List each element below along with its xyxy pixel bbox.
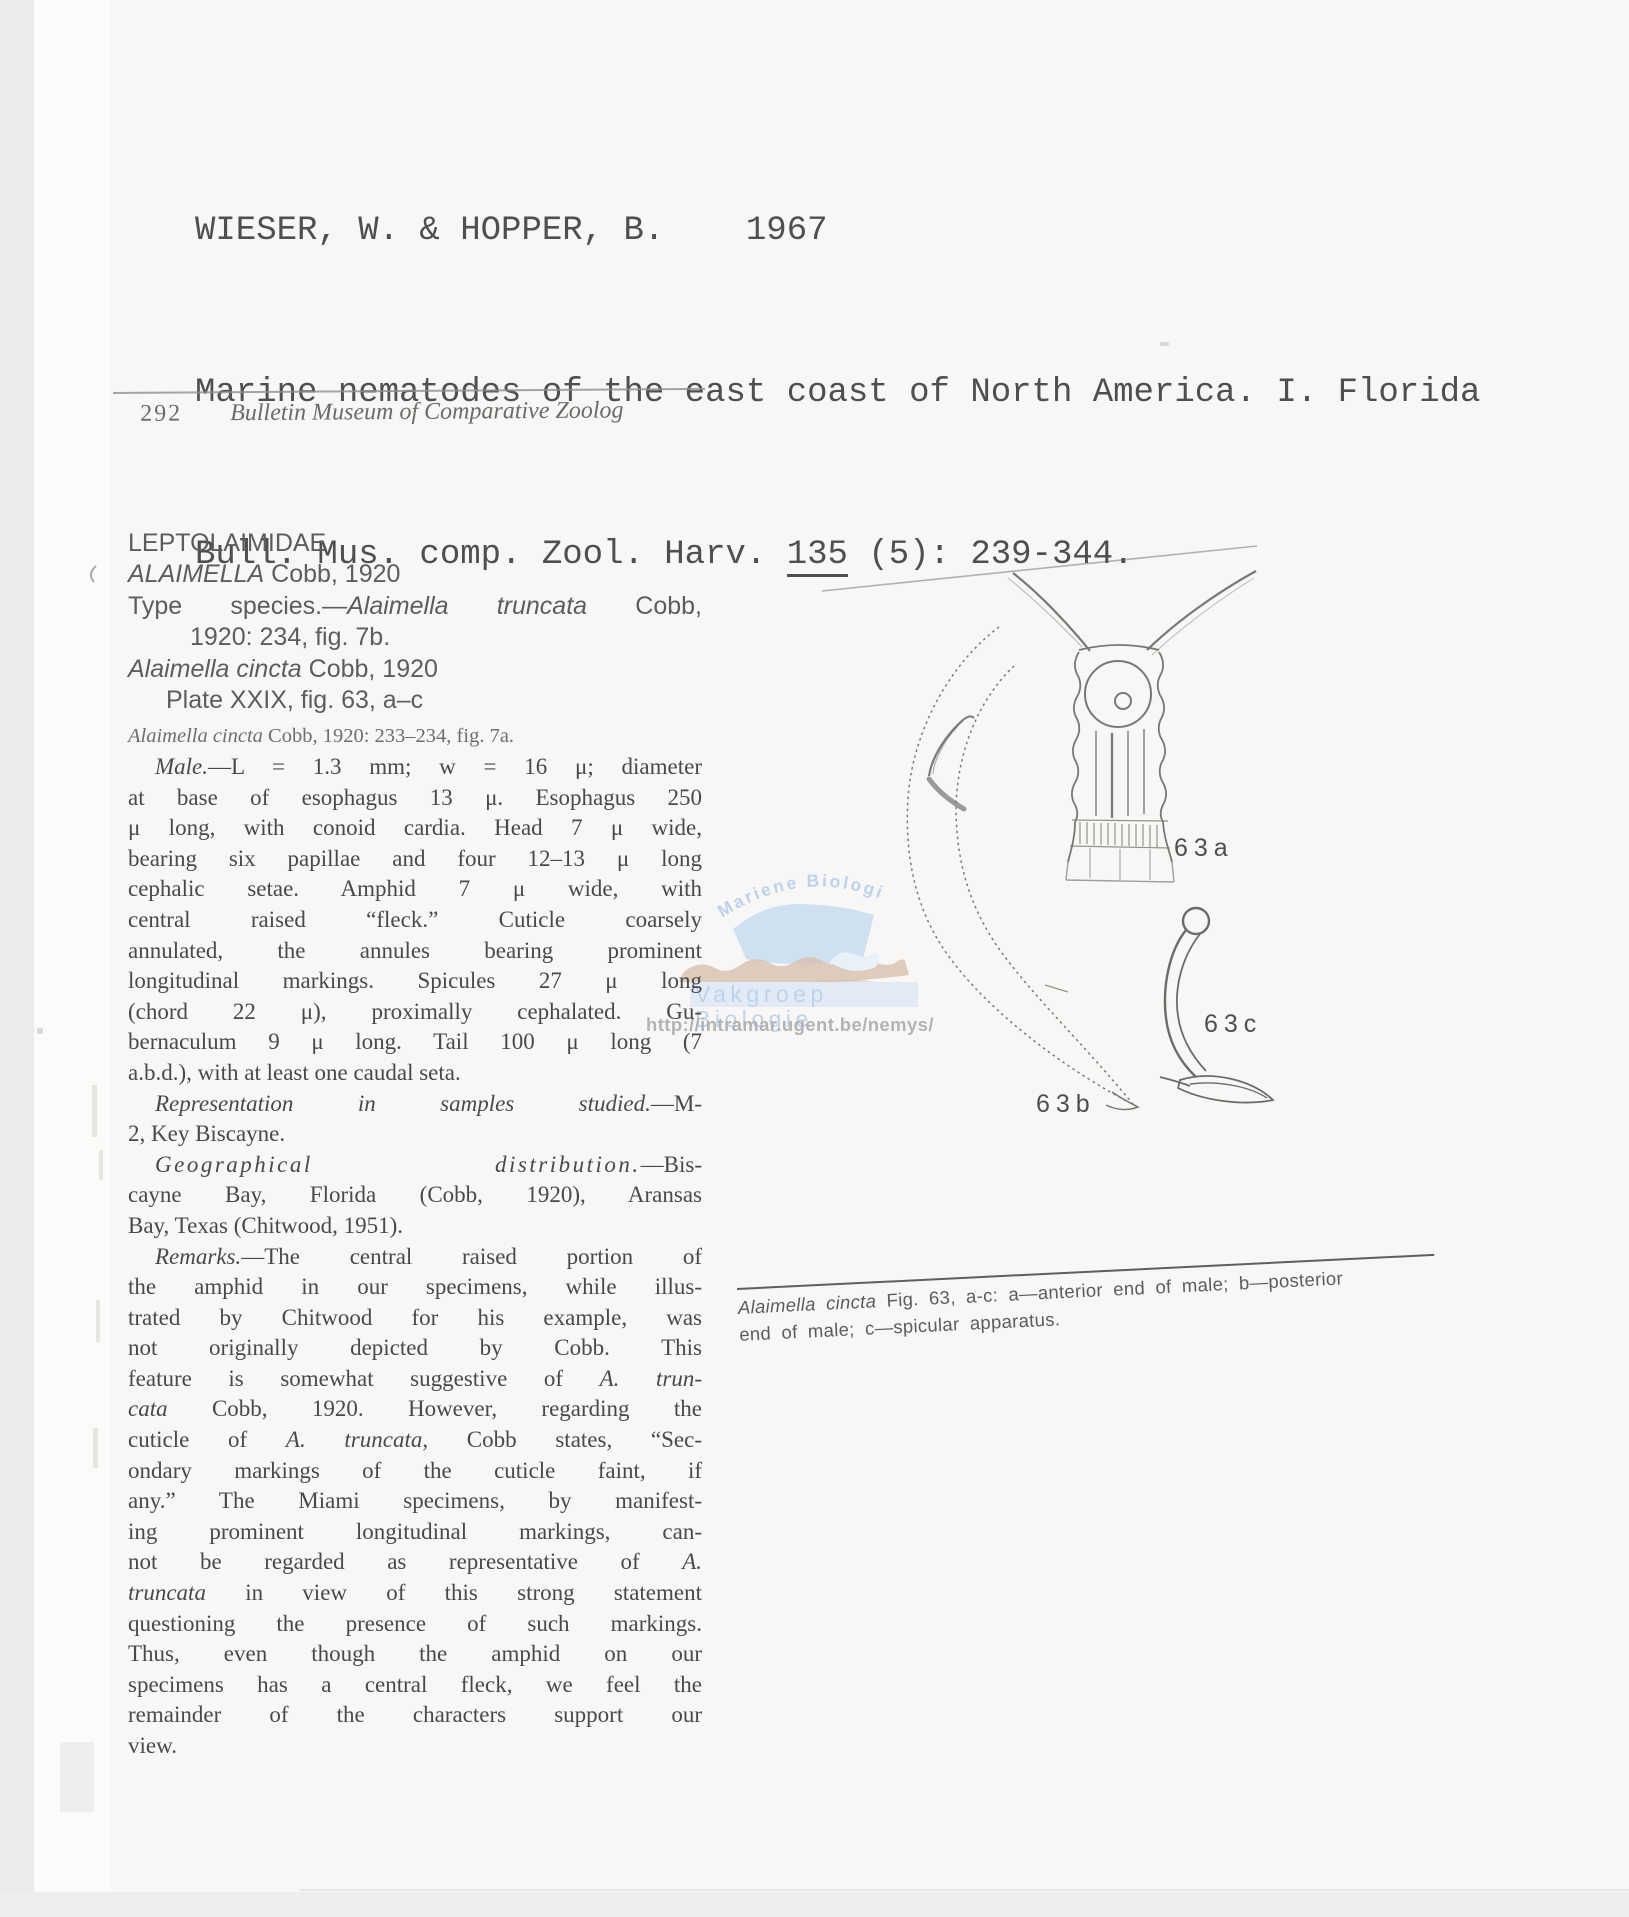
text-line: Plate XXIX, fig. 63, a–c [128, 685, 702, 716]
text-line: 2, Key Biscayne. [128, 1119, 702, 1150]
text-line: Male.—L = 1.3 mm; w = 16 μ; diameter [128, 752, 702, 783]
text-line: questioning the presence of such marking… [128, 1609, 702, 1640]
text-line: Representation in samples studied.—M- [128, 1089, 702, 1120]
text-line: cata Cobb, 1920. However, regarding the [128, 1394, 702, 1425]
page-number: 292 [140, 401, 182, 427]
watermark-band: Vakgroep Biologie [690, 982, 918, 1007]
article-headings: LEPTOLAIMIDAEALAIMELLA Cobb, 1920Type sp… [128, 528, 702, 749]
text-line: Type species.—Alaimella truncata Cobb, [128, 591, 702, 622]
text-line: Bay, Texas (Chitwood, 1951). [128, 1211, 702, 1242]
text-line: a.b.d.), with at least one caudal seta. [128, 1058, 702, 1089]
article-body: Male.—L = 1.3 mm; w = 16 μ; diameterat b… [128, 752, 702, 1762]
text-line: (chord 22 μ), proximally cephalated. Gu- [128, 997, 702, 1028]
text-line: at base of esophagus 13 μ. Esophagus 250 [128, 783, 702, 814]
text-line: feature is somewhat suggestive of A. tru… [128, 1364, 702, 1395]
text-line: central raised “fleck.” Cuticle coarsely [128, 905, 702, 936]
text-line: cephalic setae. Amphid 7 μ wide, with [128, 874, 702, 905]
text-line: remainder of the characters support our [128, 1700, 702, 1731]
text-line: cayne Bay, Florida (Cobb, 1920), Aransas [128, 1180, 702, 1211]
text-line: μ long, with conoid cardia. Head 7 μ wid… [128, 813, 702, 844]
text-line: specimens has a central fleck, we feel t… [128, 1670, 702, 1701]
running-header: 292Bulletin Museum of Comparative Zoolog [113, 388, 705, 428]
text-line: ALAIMELLA Cobb, 1920 [128, 559, 702, 590]
scanned-page: Mariene Biologie Vakgroep Biologie http:… [0, 0, 1629, 1917]
text-line: Thus, even though the amphid on our [128, 1639, 702, 1670]
text-line: not originally depicted by Cobb. This [128, 1333, 702, 1364]
text-line: not be regarded as representative of A. [128, 1547, 702, 1578]
text-line: truncata in view of this strong statemen… [128, 1578, 702, 1609]
text-line: ing prominent longitudinal markings, can… [128, 1517, 702, 1548]
citation-authors: WIESER, W. & HOPPER, B. 1967 [195, 204, 1480, 258]
text-line: longitudinal markings. Spicules 27 μ lon… [128, 966, 702, 997]
text-line: trated by Chitwood for his example, was [128, 1303, 702, 1334]
journal-title: Bulletin Museum of Comparative Zoolog [230, 397, 623, 426]
text-line: ondary markings of the cuticle faint, if [128, 1456, 702, 1487]
text-line: the amphid in our specimens, while illus… [128, 1272, 702, 1303]
text-line: 1920: 234, fig. 7b. [128, 622, 702, 653]
text-line: Remarks.—The central raised portion of [128, 1242, 702, 1273]
text-line: annulated, the annules bearing prominent [128, 936, 702, 967]
text-line: bernaculum 9 μ long. Tail 100 μ long (7 [128, 1027, 702, 1058]
text-line: view. [128, 1731, 702, 1762]
text-line: cuticle of A. truncata, Cobb states, “Se… [128, 1425, 702, 1456]
text-line: Alaimella cincta Cobb, 1920: 233–234, fi… [128, 723, 702, 749]
text-line: LEPTOLAIMIDAE [128, 528, 702, 559]
citation-volume: 135 [787, 536, 848, 577]
text-line: bearing six papillae and four 12–13 μ lo… [128, 844, 702, 875]
text-line: Alaimella cincta Cobb, 1920 [128, 654, 702, 685]
text-line: Geographical distribution.—Bis- [128, 1150, 702, 1181]
text-line: any.” The Miami specimens, by manifest- [128, 1486, 702, 1517]
